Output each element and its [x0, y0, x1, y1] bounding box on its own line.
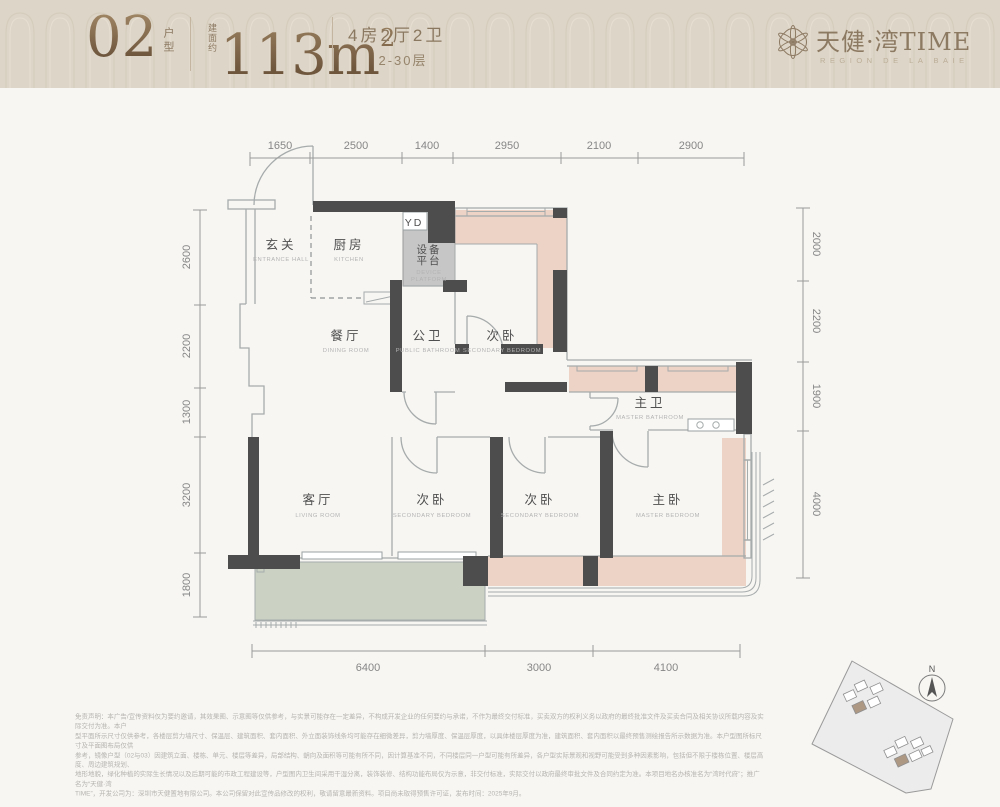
dim-value: 6400 [356, 662, 380, 674]
room-label-master-bath-en: MASTER BATHROOM [616, 415, 684, 421]
disclaimer-line: 免责声明：本广告/宣传资料仅为要约邀请，其效果图、示意图等仅供参考，与实景可能存… [75, 712, 765, 731]
room-label-dining-en: DINING ROOM [323, 348, 370, 354]
room-label-public-bath-cn: 公卫 [412, 329, 443, 343]
dim-value: 2200 [181, 334, 193, 358]
disclaimer-line: 参考，镜像户型（02与03）因建筑立面、楼栋、单元、楼层等差异，局部结构、朝向及… [75, 751, 765, 770]
room-label-entrance-cn: 玄关 [265, 237, 296, 252]
dim-value: 1400 [415, 140, 439, 152]
dimension-right: 2000 2200 1900 4000 [796, 208, 822, 578]
dim-value: 2900 [679, 140, 703, 152]
dim-value: 3000 [527, 662, 551, 674]
room-label-living-cn: 客厅 [302, 492, 333, 507]
dimension-left: 2600 2200 1300 3200 1800 [181, 210, 207, 617]
dim-value: 2600 [181, 245, 193, 269]
floor-plan: 玄关 ENTRANCE HALL 厨房 KITCHEN 设备 平台 DEVICE… [0, 0, 1000, 807]
room-label-bedroom-mid-cn: 次卧 [416, 493, 447, 507]
door-arcs [254, 146, 648, 473]
room-label-device-en2: PLATFORM [411, 277, 447, 283]
disclaimer-text: 免责声明：本广告/宣传资料仅为要约邀请，其效果图、示意图等仅供参考，与实景可能存… [75, 712, 765, 772]
room-label-kitchen-cn: 厨房 [333, 237, 364, 252]
room-label-master-bed-cn: 主卧 [652, 493, 683, 507]
room-label-dining-cn: 餐厅 [330, 328, 361, 343]
room-label-bedroom-top-cn: 次卧 [486, 329, 517, 343]
disclaimer-line: TIME”，开发公司为：深圳市天健置地有限公司。本公司保留对此宣传品修改的权利，… [75, 789, 765, 799]
room-label-public-bath-en: PUBLIC BATHROOM [396, 348, 461, 354]
dim-value: 4100 [654, 662, 678, 674]
room-label-kitchen-en: KITCHEN [334, 257, 364, 263]
room-label-device-cn2: 平台 [417, 254, 442, 267]
room-label-bedroom-right-cn: 次卧 [524, 493, 555, 507]
disclaimer-line: 地形地貌，绿化种植的实际生长情况以及后期可能的市政工程建设等，户型图内卫生间采用… [75, 770, 765, 789]
dim-value: 2500 [344, 140, 368, 152]
north-arrow-icon: N [919, 664, 945, 701]
dim-value: 1650 [268, 140, 292, 152]
room-label-living-en: LIVING ROOM [295, 513, 340, 519]
dim-value: 1900 [810, 384, 822, 408]
dim-value: 2100 [587, 140, 611, 152]
dim-value: 2000 [810, 232, 822, 256]
dim-value: 1300 [181, 400, 193, 424]
disclaimer-line: 型平面所示尺寸仅供参考，各楼层剪力墙尺寸、保温层、建筑面积、套内面积、外立面装饰… [75, 731, 765, 750]
room-label-entrance-en: ENTRANCE HALL [253, 257, 309, 263]
flue-label: YD [405, 217, 424, 229]
dimension-top: 1650 2500 1400 2950 2100 2900 [250, 140, 744, 166]
room-label-master-bed-en: MASTER BEDROOM [636, 513, 700, 519]
room-label-bedroom-right-en: SECONDARY BEDROOM [501, 513, 579, 519]
room-label-bedroom-mid-en: SECONDARY BEDROOM [393, 513, 471, 519]
room-label-master-bath-cn: 主卫 [634, 396, 665, 410]
drain-hatch [763, 479, 774, 540]
dim-value: 2950 [495, 140, 519, 152]
room-label-bedroom-top-en: SECONDARY BEDROOM [463, 348, 541, 354]
dim-value: 1800 [181, 573, 193, 597]
site-plan-map: N [812, 661, 953, 793]
dim-value: 4000 [810, 492, 822, 516]
dimension-bottom: 6400 3000 4100 [252, 644, 740, 674]
dim-value: 2200 [810, 309, 822, 333]
dim-value: 3200 [181, 483, 193, 507]
compass-label: N [929, 664, 936, 674]
room-label-device-en1: DEVICE [416, 270, 441, 276]
